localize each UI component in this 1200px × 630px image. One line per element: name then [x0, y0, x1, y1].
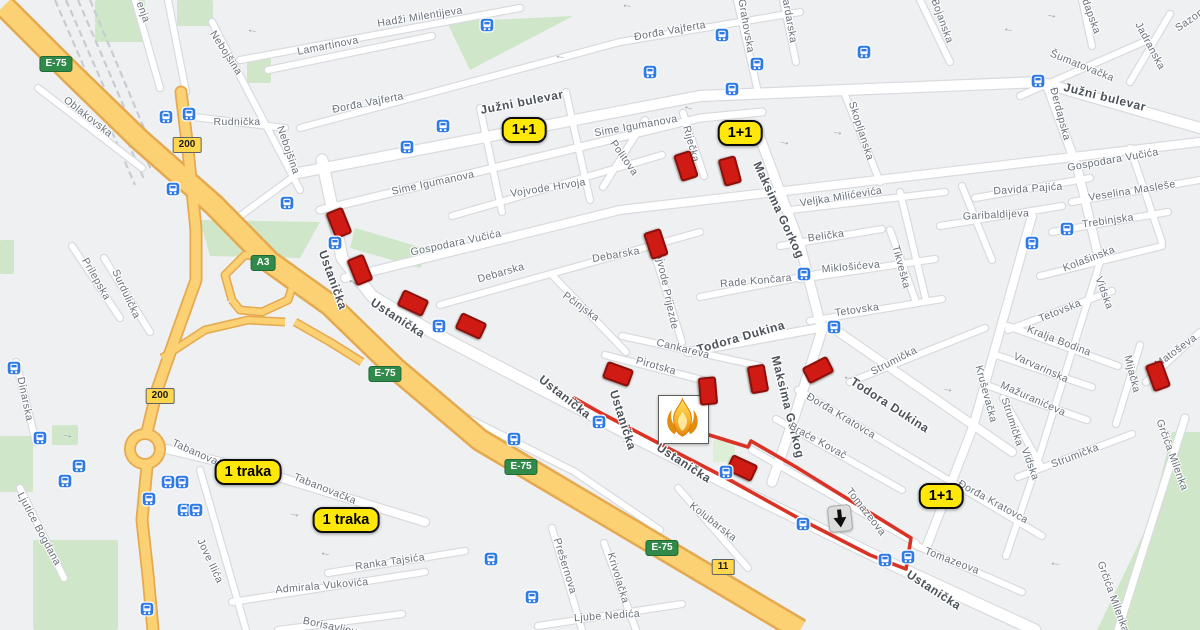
bus-glyph — [72, 459, 87, 474]
route-shield: 200 — [146, 388, 175, 404]
bus-stop-icon[interactable] — [58, 474, 73, 489]
bus-glyph — [901, 550, 916, 565]
bus-glyph — [827, 320, 842, 335]
bus-stop-icon[interactable] — [189, 503, 204, 518]
road — [538, 604, 682, 626]
bus-stop-icon[interactable] — [1031, 74, 1046, 89]
bus-glyph — [280, 196, 295, 211]
bus-stop-icon[interactable] — [480, 18, 495, 33]
route-shield: E-75 — [504, 459, 537, 475]
bus-glyph — [878, 553, 893, 568]
bus-glyph — [1025, 236, 1040, 251]
road — [1008, 291, 1112, 330]
bus-glyph — [1060, 222, 1075, 237]
road — [993, 354, 1092, 387]
road — [552, 528, 582, 630]
bus-stop-icon[interactable] — [878, 553, 893, 568]
bus-stop-icon[interactable] — [328, 236, 343, 251]
detour-arrow-icon[interactable] — [827, 504, 854, 533]
lane-count-label: 1+1 — [502, 117, 547, 143]
tram-stop-icon[interactable] — [161, 475, 176, 490]
route-shield: E-75 — [645, 540, 678, 556]
bus-stop-icon[interactable] — [280, 196, 295, 211]
bus-glyph — [166, 182, 181, 197]
down-arrow-icon — [828, 505, 852, 532]
bus-glyph — [750, 57, 765, 72]
lane-count-label: 1 traka — [313, 507, 380, 533]
flame-icon — [659, 396, 706, 441]
bus-stop-icon[interactable] — [33, 431, 48, 446]
bus-glyph — [525, 590, 540, 605]
map-base-layer — [0, 0, 1200, 630]
route-shield: E-75 — [39, 56, 72, 72]
map-canvas[interactable]: →→→→→→→→→→→→→→→→Hadži MilentijevaĐorđa V… — [0, 0, 1200, 630]
bus-stop-icon[interactable] — [901, 550, 916, 565]
tram-stop-icon[interactable] — [159, 110, 174, 125]
road-closure-marker[interactable] — [698, 376, 718, 405]
road — [1116, 345, 1140, 424]
bus-stop-icon[interactable] — [1060, 222, 1075, 237]
road — [200, 470, 246, 630]
bus-stop-icon[interactable] — [796, 517, 811, 532]
bus-stop-icon[interactable] — [400, 140, 415, 155]
bus-stop-icon[interactable] — [1025, 236, 1040, 251]
road — [104, 258, 150, 332]
bus-glyph — [182, 107, 197, 122]
bus-glyph — [142, 492, 157, 507]
bus-stop-icon[interactable] — [507, 432, 522, 447]
park — [52, 425, 78, 445]
park — [33, 540, 118, 630]
bus-glyph — [715, 28, 730, 43]
road — [603, 120, 645, 187]
road — [1072, 180, 1200, 202]
road — [983, 384, 1087, 420]
bus-glyph — [796, 517, 811, 532]
lane-count-label: 1+1 — [919, 483, 964, 509]
bus-stop-icon[interactable] — [715, 28, 730, 43]
bus-stop-icon[interactable] — [175, 475, 190, 490]
bus-glyph — [857, 45, 872, 60]
bus-glyph — [400, 140, 415, 155]
road — [776, 419, 902, 490]
bus-stop-icon[interactable] — [725, 82, 740, 97]
bus-glyph — [436, 119, 451, 134]
bus-glyph — [507, 432, 522, 447]
bus-stop-icon[interactable] — [72, 459, 87, 474]
bus-glyph — [719, 465, 734, 480]
bus-stop-icon[interactable] — [525, 590, 540, 605]
bus-glyph — [140, 602, 155, 617]
bus-glyph — [643, 65, 658, 80]
route-shield: 200 — [173, 137, 202, 153]
bus-stop-icon[interactable] — [140, 602, 155, 617]
road — [1008, 326, 1118, 366]
bus-glyph — [58, 474, 73, 489]
route-shield: E-75 — [368, 366, 401, 382]
road — [790, 192, 945, 210]
bus-glyph — [328, 236, 343, 251]
road — [845, 95, 880, 182]
bus-glyph — [175, 475, 190, 490]
bus-stop-icon[interactable] — [750, 57, 765, 72]
bus-glyph — [592, 415, 607, 430]
bus-glyph — [484, 552, 499, 567]
road — [810, 299, 942, 321]
tram-glyph — [161, 475, 176, 490]
bus-stop-icon[interactable] — [436, 119, 451, 134]
road — [975, 178, 1090, 198]
bus-stop-icon[interactable] — [827, 320, 842, 335]
road — [553, 276, 626, 352]
park — [0, 436, 33, 492]
road — [480, 108, 502, 212]
bus-stop-icon[interactable] — [7, 361, 22, 376]
lane-count-label: 1 traka — [215, 459, 282, 485]
bus-stop-icon[interactable] — [643, 65, 658, 80]
bus-glyph — [797, 267, 812, 282]
park — [0, 240, 14, 274]
road — [940, 206, 1062, 226]
road — [328, 551, 465, 573]
bus-glyph — [7, 361, 22, 376]
route-shield: 11 — [712, 559, 735, 575]
road — [920, 0, 950, 62]
bus-stop-icon[interactable] — [592, 415, 607, 430]
road — [72, 246, 120, 318]
bus-glyph — [33, 431, 48, 446]
park — [177, 0, 213, 26]
bus-glyph — [725, 82, 740, 97]
bus-glyph — [1031, 74, 1046, 89]
bus-stop-icon[interactable] — [719, 465, 734, 480]
bus-stop-icon[interactable] — [182, 107, 197, 122]
bus-glyph — [432, 319, 447, 334]
road — [737, 0, 758, 92]
bus-stop-icon[interactable] — [142, 492, 157, 507]
bus-glyph — [480, 18, 495, 33]
lane-count-label: 1+1 — [718, 120, 763, 146]
bus-stop-icon[interactable] — [797, 267, 812, 282]
bus-stop-icon[interactable] — [484, 552, 499, 567]
route-shield: A3 — [251, 255, 276, 271]
road — [278, 614, 402, 630]
road — [135, 0, 160, 88]
tram-glyph — [159, 110, 174, 125]
bus-stop-icon[interactable] — [166, 182, 181, 197]
bus-stop-icon[interactable] — [432, 319, 447, 334]
bus-glyph — [189, 503, 204, 518]
bus-stop-icon[interactable] — [857, 45, 872, 60]
